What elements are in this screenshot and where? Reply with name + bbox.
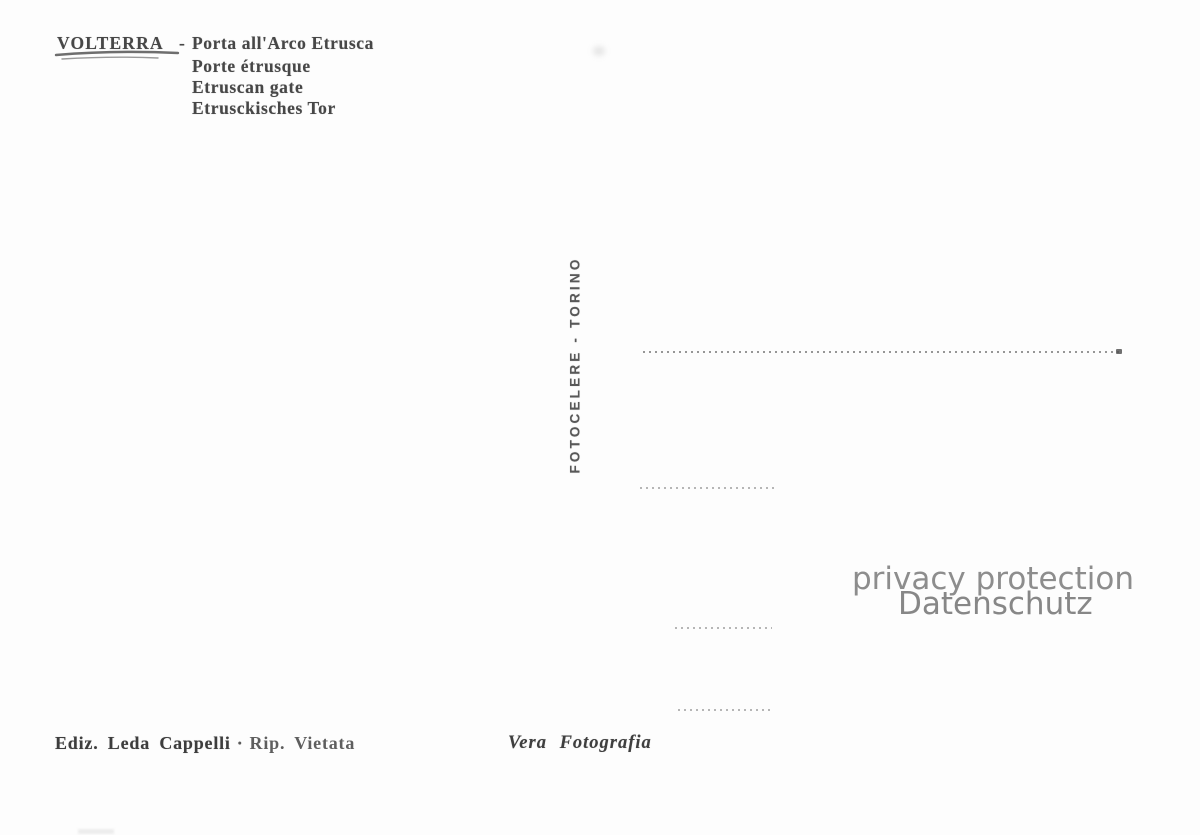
address-line-2 [640, 487, 776, 489]
edition-publisher: Ediz. Leda Cappelli [55, 733, 231, 753]
scan-smudge-top [586, 40, 612, 62]
address-line-1 [643, 351, 1121, 353]
caption-french: Porte étrusque [192, 56, 336, 77]
edition-line: Ediz. Leda Cappelli·Rip. Vietata [55, 733, 355, 754]
address-line-3 [675, 627, 772, 629]
publisher-imprint: FOTOCELERE - TORINO [568, 256, 583, 473]
authenticity-note: Vera Fotografia [508, 733, 652, 754]
title-underline [54, 49, 182, 61]
watermark-line-2: Datenschutz [898, 586, 1093, 622]
caption-english: Etruscan gate [192, 77, 336, 98]
title-block: VOLTERRA - Porta all'Arco Etrusca Porte … [57, 31, 336, 119]
address-line-4 [678, 709, 770, 711]
postcard-back: VOLTERRA - Porta all'Arco Etrusca Porte … [0, 0, 1200, 835]
address-line-1-endmark [1116, 349, 1122, 354]
edition-separator: · [231, 733, 250, 753]
caption-german: Etrusckisches Tor [192, 98, 336, 119]
title-separator: - [179, 31, 185, 56]
rights-notice: Rip. Vietata [250, 733, 356, 753]
caption-italian: Porta all'Arco Etrusca [192, 31, 374, 56]
scan-smudge-bottom [78, 829, 114, 834]
title-line: VOLTERRA - Porta all'Arco Etrusca [57, 31, 336, 56]
